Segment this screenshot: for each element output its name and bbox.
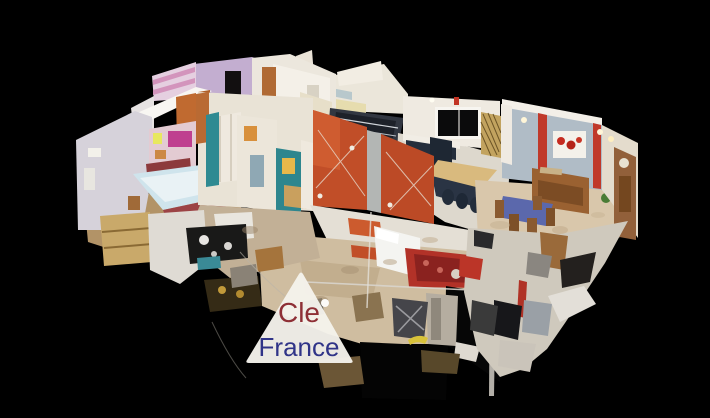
svg-text:Cle: Cle: [278, 297, 320, 328]
svg-text:France: France: [259, 332, 340, 362]
